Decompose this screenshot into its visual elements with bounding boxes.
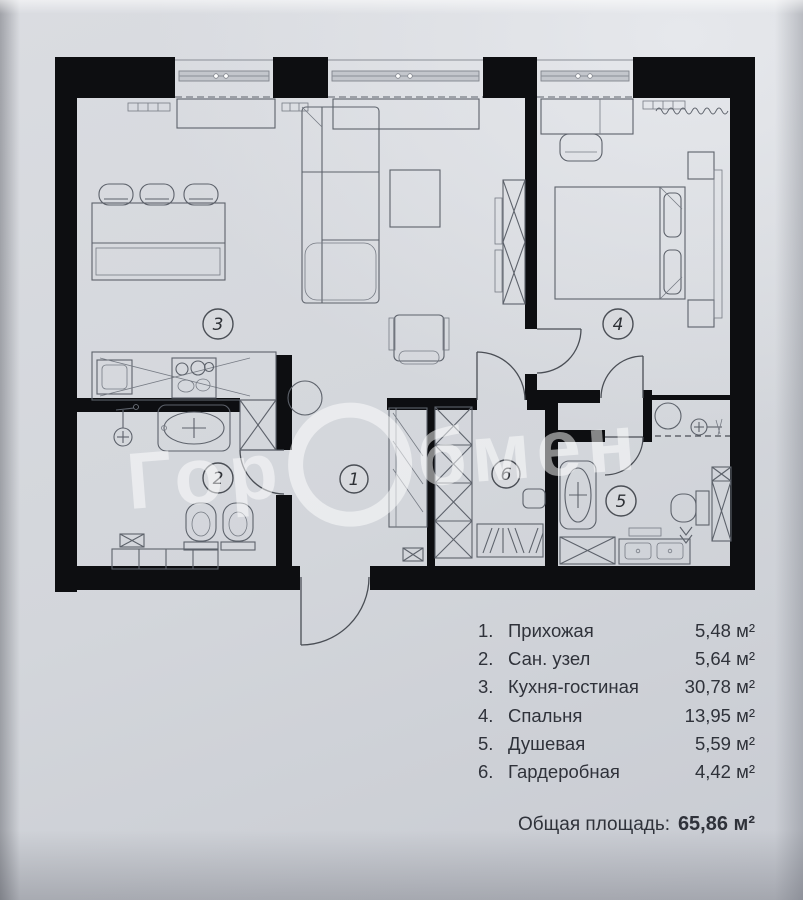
total-area-row: Общая площадь: 65,86 м² (478, 813, 755, 836)
legend-row: 1. Прихожая 5,48 м² (478, 621, 755, 641)
shower-mixer-icon (691, 419, 722, 435)
svg-text:4: 4 (613, 315, 624, 335)
room-number-6: 6 (492, 460, 520, 488)
window-sill-desk (333, 99, 479, 129)
tall-cabinet (712, 467, 731, 541)
door-bedroom-to-shower (601, 356, 643, 398)
nightstand (688, 152, 714, 179)
bedroom-desk (541, 99, 633, 161)
legend-number: 3. (478, 677, 508, 697)
nightstand (688, 300, 714, 327)
legend-label: Душевая (508, 734, 695, 754)
legend-label: Сан. узел (508, 649, 695, 669)
wall-hung-toilet (184, 503, 218, 550)
room-number-1: 1 (340, 465, 368, 493)
armchair (389, 315, 449, 364)
bar-stools (99, 184, 218, 205)
legend-number: 6. (478, 762, 508, 782)
hall-box (403, 548, 423, 561)
shower-tray (560, 461, 596, 529)
stool (523, 489, 545, 508)
legend-row: 4. Спальня 13,95 м² (478, 706, 755, 726)
svg-text:6: 6 (501, 465, 512, 485)
kitchen-island (92, 203, 225, 280)
window-living (328, 60, 483, 97)
door-bedroom (537, 329, 581, 373)
legend-label: Гардеробная (508, 762, 695, 782)
door-shower-room (605, 437, 643, 475)
window-kitchen (175, 60, 273, 97)
door-bathroom (240, 450, 284, 494)
legend-area: 13,95 м² (685, 706, 755, 726)
towel-rail (629, 528, 661, 536)
radiator-row (128, 103, 308, 111)
legend-row: 2. Сан. узел 5,64 м² (478, 649, 755, 669)
legend-label: Прихожая (508, 621, 695, 641)
wall-trim (714, 170, 722, 318)
wall-hung-bidet (221, 503, 255, 550)
legend-number: 2. (478, 649, 508, 669)
svg-text:1: 1 (349, 470, 360, 490)
shoe-rack (477, 524, 543, 557)
legend-area: 30,78 м² (685, 677, 755, 697)
double-sink-vanity (619, 539, 690, 564)
door-entrance (301, 577, 369, 645)
total-area-label: Общая площадь: (518, 813, 670, 836)
window-bedroom (537, 60, 633, 97)
svg-text:5: 5 (616, 492, 627, 512)
under-counter-cabinet (560, 537, 615, 564)
mirror-wardrobe (389, 408, 427, 527)
coffee-table (390, 170, 440, 227)
washing-machine (240, 400, 276, 450)
door-corridor (477, 352, 525, 400)
room-number-4: 4 (603, 309, 633, 339)
kitchen-counter (92, 352, 276, 400)
room-number-5: 5 (606, 486, 636, 516)
total-area-value: 65,86 м² (678, 813, 755, 836)
svg-text:3: 3 (213, 315, 224, 335)
svg-text:2: 2 (213, 469, 224, 489)
legend-number: 1. (478, 621, 508, 641)
room-number-3: 3 (203, 309, 233, 339)
round-table (288, 381, 322, 415)
radiator-row (643, 101, 685, 109)
window-sill-desk (177, 99, 275, 128)
room-legend: 1. Прихожая 5,48 м² 2. Сан. узел 5,64 м²… (478, 621, 755, 836)
legend-label: Кухня-гостиная (508, 677, 685, 697)
toilet (671, 491, 709, 543)
floor-plan-photo: 3 (0, 0, 803, 900)
sofa (302, 107, 379, 303)
tv-wardrobe (495, 180, 525, 304)
legend-number: 4. (478, 706, 508, 726)
floor-box (120, 534, 144, 547)
outer-walls (55, 57, 755, 592)
legend-label: Спальня (508, 706, 685, 726)
legend-area: 4,42 м² (695, 762, 755, 782)
legend-area: 5,59 м² (695, 734, 755, 754)
legend-area: 5,48 м² (695, 621, 755, 641)
legend-row: 3. Кухня-гостиная 30,78 м² (478, 677, 755, 697)
closet-column (435, 407, 472, 558)
bed (555, 187, 685, 299)
legend-area: 5,64 м² (695, 649, 755, 669)
legend-row: 6. Гардеробная 4,42 м² (478, 762, 755, 782)
room-number-2: 2 (203, 463, 233, 493)
legend-row: 5. Душевая 5,59 м² (478, 734, 755, 754)
shower-drain (655, 403, 681, 429)
legend-number: 5. (478, 734, 508, 754)
